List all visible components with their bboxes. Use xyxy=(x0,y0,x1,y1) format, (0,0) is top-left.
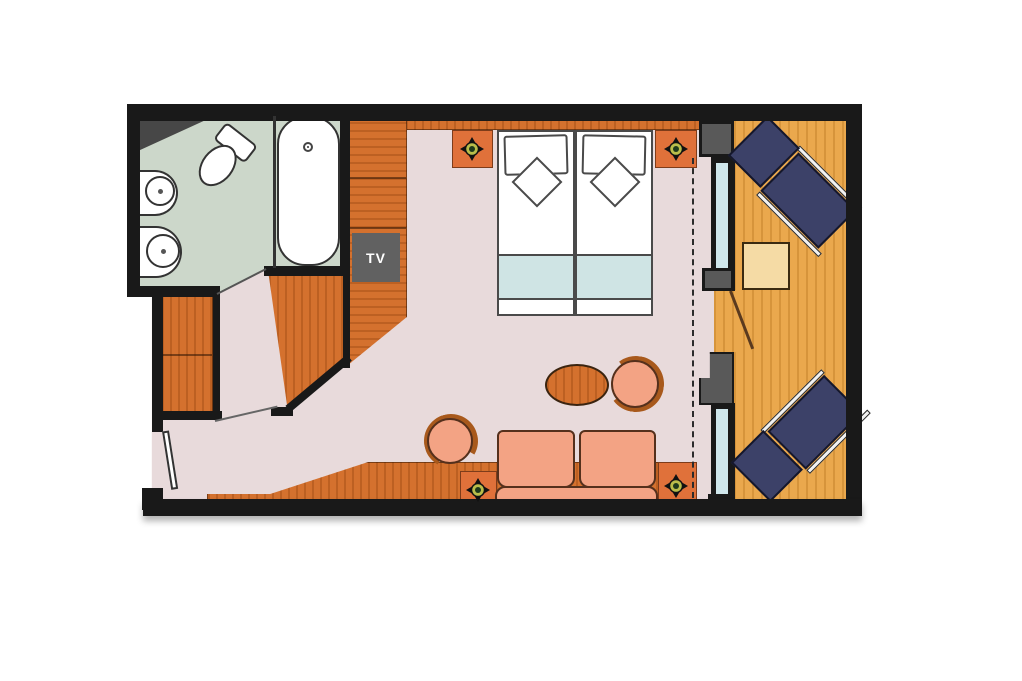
wardrobe-seam xyxy=(349,177,406,179)
chair-seat xyxy=(611,360,659,408)
reading-lamp-icon xyxy=(459,136,485,162)
tv-panel: TV xyxy=(352,233,400,282)
tv-label: TV xyxy=(366,250,386,266)
window-lower-frame xyxy=(711,403,735,502)
twin-bed-left xyxy=(497,130,575,316)
window-sill-block xyxy=(702,268,734,291)
oval-coffee-table xyxy=(545,364,609,406)
window-upper-glass xyxy=(716,163,728,284)
twin-bed-right xyxy=(575,130,653,316)
wall-left-upper xyxy=(127,104,140,296)
sofa-cushion-left xyxy=(497,430,575,488)
wall-left-lower xyxy=(152,292,163,432)
bathtub-drain xyxy=(303,142,313,152)
drain-dot xyxy=(161,249,166,254)
wall-bottom xyxy=(143,499,862,516)
closet-bottom-wall xyxy=(163,411,222,420)
ceiling-projection-line xyxy=(692,158,694,498)
sofa-cushion-right xyxy=(579,430,656,488)
wardrobe-angled-cap xyxy=(271,407,293,416)
drain-dot xyxy=(158,189,163,194)
washbasin-1 xyxy=(145,176,175,206)
wall-block-top-right xyxy=(699,121,734,157)
wardrobe-seam xyxy=(349,227,406,229)
wall-top xyxy=(127,104,862,121)
tub-bottom-wall xyxy=(264,266,350,276)
floor-plan: TV xyxy=(0,0,1022,681)
tub-partition xyxy=(273,116,276,268)
window-lower-glass xyxy=(716,409,728,495)
wardrobe-divider-wall xyxy=(343,268,350,368)
bathroom-bottom-wall xyxy=(127,286,220,297)
wall-left-corner xyxy=(142,488,163,510)
bed-blanket xyxy=(577,254,651,300)
round-chair-left xyxy=(424,414,478,468)
bathroom-right-wall xyxy=(340,104,350,276)
closet-right-wall xyxy=(213,292,220,417)
balcony-side-table xyxy=(742,242,790,290)
round-chair-right xyxy=(608,356,664,412)
bed-blanket xyxy=(499,254,573,300)
reading-lamp-icon xyxy=(663,473,689,499)
wall-right xyxy=(846,104,862,516)
reading-lamp-icon xyxy=(465,477,491,503)
chair-seat xyxy=(427,418,473,464)
washbasin-2 xyxy=(146,234,180,268)
reading-lamp-icon xyxy=(663,136,689,162)
bathtub xyxy=(277,116,340,266)
